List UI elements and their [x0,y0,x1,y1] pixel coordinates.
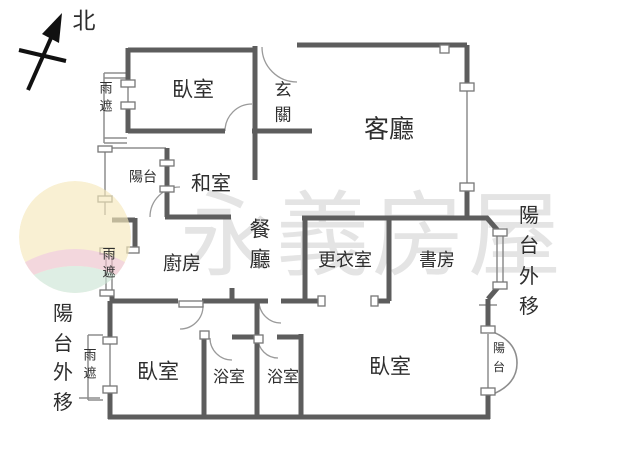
room-label-bedroom-top: 臥室 [172,78,214,101]
annotation-rain-bottom: 雨遮 [83,347,97,382]
north-arrow-icon [19,13,66,90]
floor-plan-drawing [0,0,640,461]
room-label-dining: 餐廳 [249,215,272,276]
room-label-living: 客廳 [364,115,414,143]
room-label-balcony-small: 陽台 [129,170,157,185]
room-label-study: 書房 [419,251,455,271]
room-label-tatami: 和室 [191,172,231,194]
north-label: 北 [73,9,96,34]
annotation-rain-top: 雨遮 [99,80,113,115]
room-label-closet: 更衣室 [318,251,372,271]
annotation-balcony-ext-left: 陽台外移 [52,299,74,417]
annotation-balcony-ext-right: 陽台外移 [518,200,540,322]
room-label-balcony-curved: 陽台 [493,339,506,377]
room-label-kitchen: 廚房 [163,254,201,275]
room-label-bath1: 浴室 [213,368,245,386]
room-label-bedroom-right: 臥室 [369,355,411,378]
room-label-bedroom-left: 臥室 [137,360,179,383]
annotation-rain-mid: 雨遮 [102,246,116,281]
room-label-bath2: 浴室 [267,368,299,386]
brand-logo-watermark [15,181,135,298]
floor-plan: 永義房屋 [0,0,640,461]
room-label-foyer: 玄關 [274,78,292,127]
